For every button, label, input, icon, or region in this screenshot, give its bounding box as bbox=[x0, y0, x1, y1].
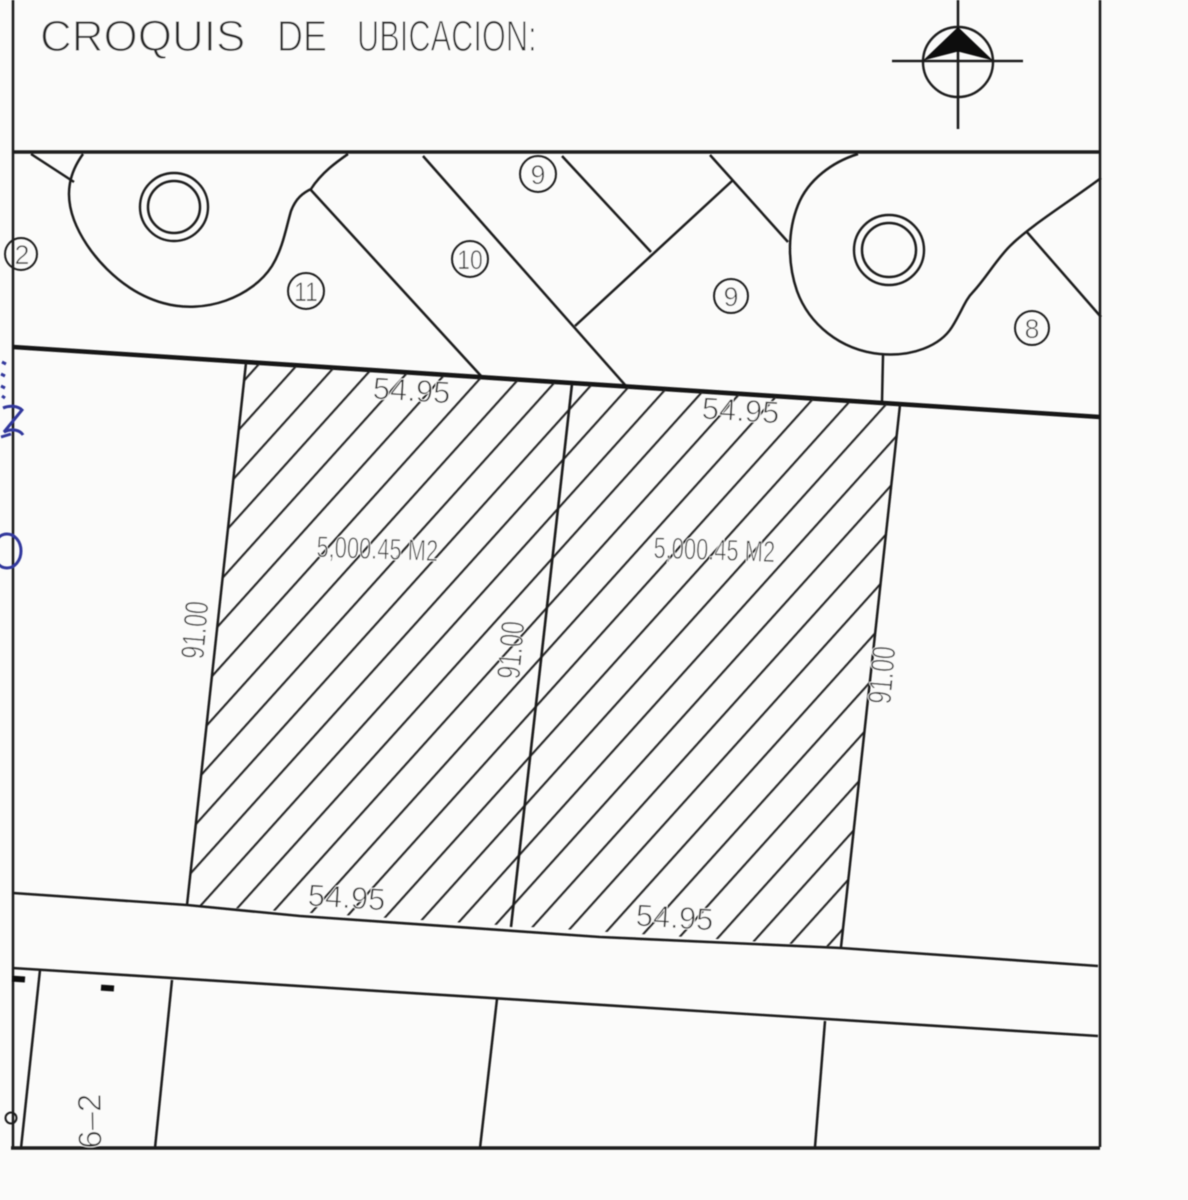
svg-text:54.95: 54.95 bbox=[307, 878, 387, 918]
svg-text:CROQUIS: CROQUIS bbox=[40, 12, 245, 61]
svg-text:54.95: 54.95 bbox=[635, 898, 715, 938]
svg-text:6–2: 6–2 bbox=[71, 1093, 109, 1149]
svg-text:UBICACION:: UBICACION: bbox=[357, 13, 537, 62]
svg-text:91.00: 91.00 bbox=[862, 645, 904, 706]
svg-text:9: 9 bbox=[530, 160, 545, 190]
svg-text:5,000.45 M2: 5,000.45 M2 bbox=[316, 529, 439, 567]
svg-text:5,000.45 M2: 5,000.45 M2 bbox=[653, 530, 776, 568]
svg-text:9: 9 bbox=[723, 282, 738, 312]
svg-text:2: 2 bbox=[14, 240, 29, 270]
svg-text:11: 11 bbox=[294, 277, 318, 307]
svg-text:54.95: 54.95 bbox=[701, 391, 781, 431]
svg-text:10: 10 bbox=[457, 245, 483, 275]
svg-text:8: 8 bbox=[1024, 314, 1039, 344]
svg-text:91.00: 91.00 bbox=[491, 620, 533, 681]
svg-text:91.00: 91.00 bbox=[175, 600, 217, 661]
svg-text:DE: DE bbox=[277, 12, 327, 61]
svg-text:54.95: 54.95 bbox=[372, 371, 452, 411]
